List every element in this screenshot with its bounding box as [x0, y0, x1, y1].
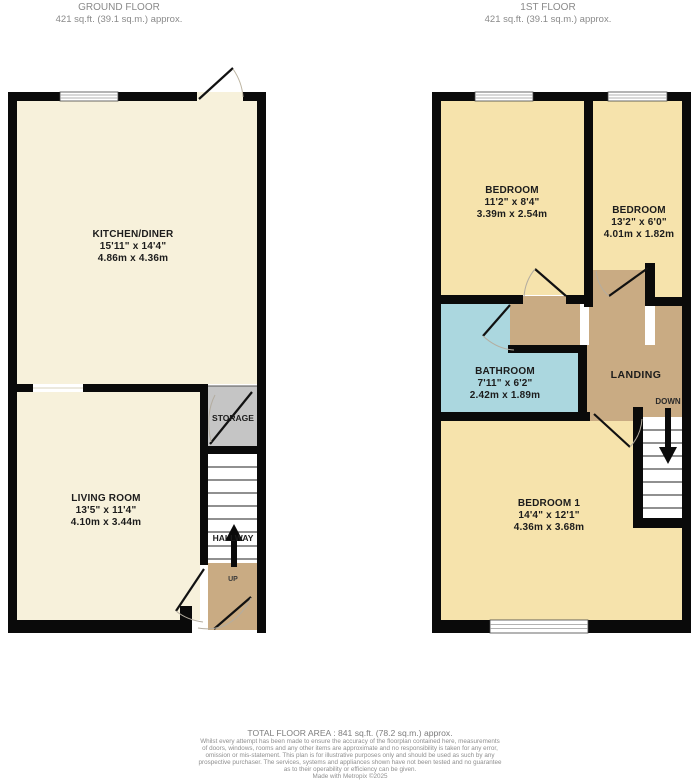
bedroom-1-label: BEDROOM 1	[518, 498, 581, 509]
bedroom-front-window	[475, 92, 533, 101]
kitchen-diner-label: KITCHEN/DINER	[93, 229, 175, 240]
living-room-imperial: 13'5" x 11'4"	[76, 505, 137, 516]
hallway-label: HALLWAY	[213, 533, 254, 543]
total-floor-area: TOTAL FLOOR AREA : 841 sq.ft. (78.2 sq.m…	[0, 728, 700, 738]
bedroom-1-imperial: 14'4" x 12'1"	[518, 510, 579, 521]
floorplan-drawing: KITCHEN/DINER 15'11" x 14'4" 4.86m x 4.3…	[0, 0, 700, 784]
bedroom-front-metric: 3.39m x 2.54m	[477, 209, 547, 220]
living-room-label: LIVING ROOM	[71, 493, 140, 504]
kitchen-door	[197, 68, 243, 101]
bathroom-label: BATHROOM	[475, 366, 535, 377]
floorplan-page: GROUND FLOOR 421 sq.ft. (39.1 sq.m.) app…	[0, 0, 700, 784]
bedroom-side-window	[608, 92, 667, 101]
storage-label: STORAGE	[212, 413, 254, 423]
bedroom-side-alcove	[655, 270, 682, 297]
landing-label: LANDING	[611, 369, 662, 381]
bedroom-1-metric: 4.36m x 3.68m	[514, 522, 584, 533]
room-hallway-up-area	[208, 563, 257, 630]
ground-floor-area: 421 sq.ft. (39.1 sq.m.) approx.	[0, 14, 238, 26]
footer: TOTAL FLOOR AREA : 841 sq.ft. (78.2 sq.m…	[0, 728, 700, 781]
bedroom-1-under-stairs	[633, 528, 682, 620]
bathroom-metric: 2.42m x 1.89m	[470, 390, 540, 401]
first-floor-stairs	[643, 417, 682, 518]
first-floor-title: 1ST FLOOR	[400, 2, 696, 14]
first-floor-plan: BEDROOM 11'2" x 8'4" 3.39m x 2.54m BEDRO…	[432, 92, 691, 633]
kitchen-diner-imperial: 15'11" x 14'4"	[100, 241, 167, 252]
kitchen-window	[60, 92, 118, 101]
bedroom-front-label: BEDROOM	[485, 185, 539, 196]
up-label: UP	[228, 576, 238, 583]
disclaimer-line: prospective purchaser. The services, sys…	[0, 759, 700, 766]
disclaimer-line: of doors, windows, rooms and any other i…	[0, 745, 700, 752]
bedroom-front-imperial: 11'2" x 8'4"	[484, 197, 539, 208]
kitchen-diner-metric: 4.86m x 4.36m	[98, 253, 168, 264]
ground-floor-title: GROUND FLOOR	[0, 2, 238, 14]
ground-floor-header: GROUND FLOOR 421 sq.ft. (39.1 sq.m.) app…	[0, 2, 238, 25]
bathroom-imperial: 7'11" x 6'2"	[477, 378, 532, 389]
first-floor-area: 421 sq.ft. (39.1 sq.m.) approx.	[400, 14, 696, 26]
disclaimer-line: Whilst every attempt has been made to en…	[0, 738, 700, 745]
disclaimer-line: omission or mis-statement. This plan is …	[0, 752, 700, 759]
first-floor-header: 1ST FLOOR 421 sq.ft. (39.1 sq.m.) approx…	[400, 2, 696, 25]
ground-floor-plan: KITCHEN/DINER 15'11" x 14'4" 4.86m x 4.3…	[8, 68, 266, 633]
made-with-credit: Made with Metropix ©2025	[0, 773, 700, 780]
bedroom-side-label: BEDROOM	[612, 205, 666, 216]
room-bedroom-side	[593, 101, 682, 270]
bedroom-side-imperial: 13'2" x 6'0"	[611, 217, 667, 228]
bedroom-side-metric: 4.01m x 1.82m	[604, 229, 674, 240]
living-room-metric: 4.10m x 3.44m	[71, 517, 141, 528]
down-label: DOWN	[655, 397, 681, 406]
bedroom-1-window	[490, 620, 588, 633]
